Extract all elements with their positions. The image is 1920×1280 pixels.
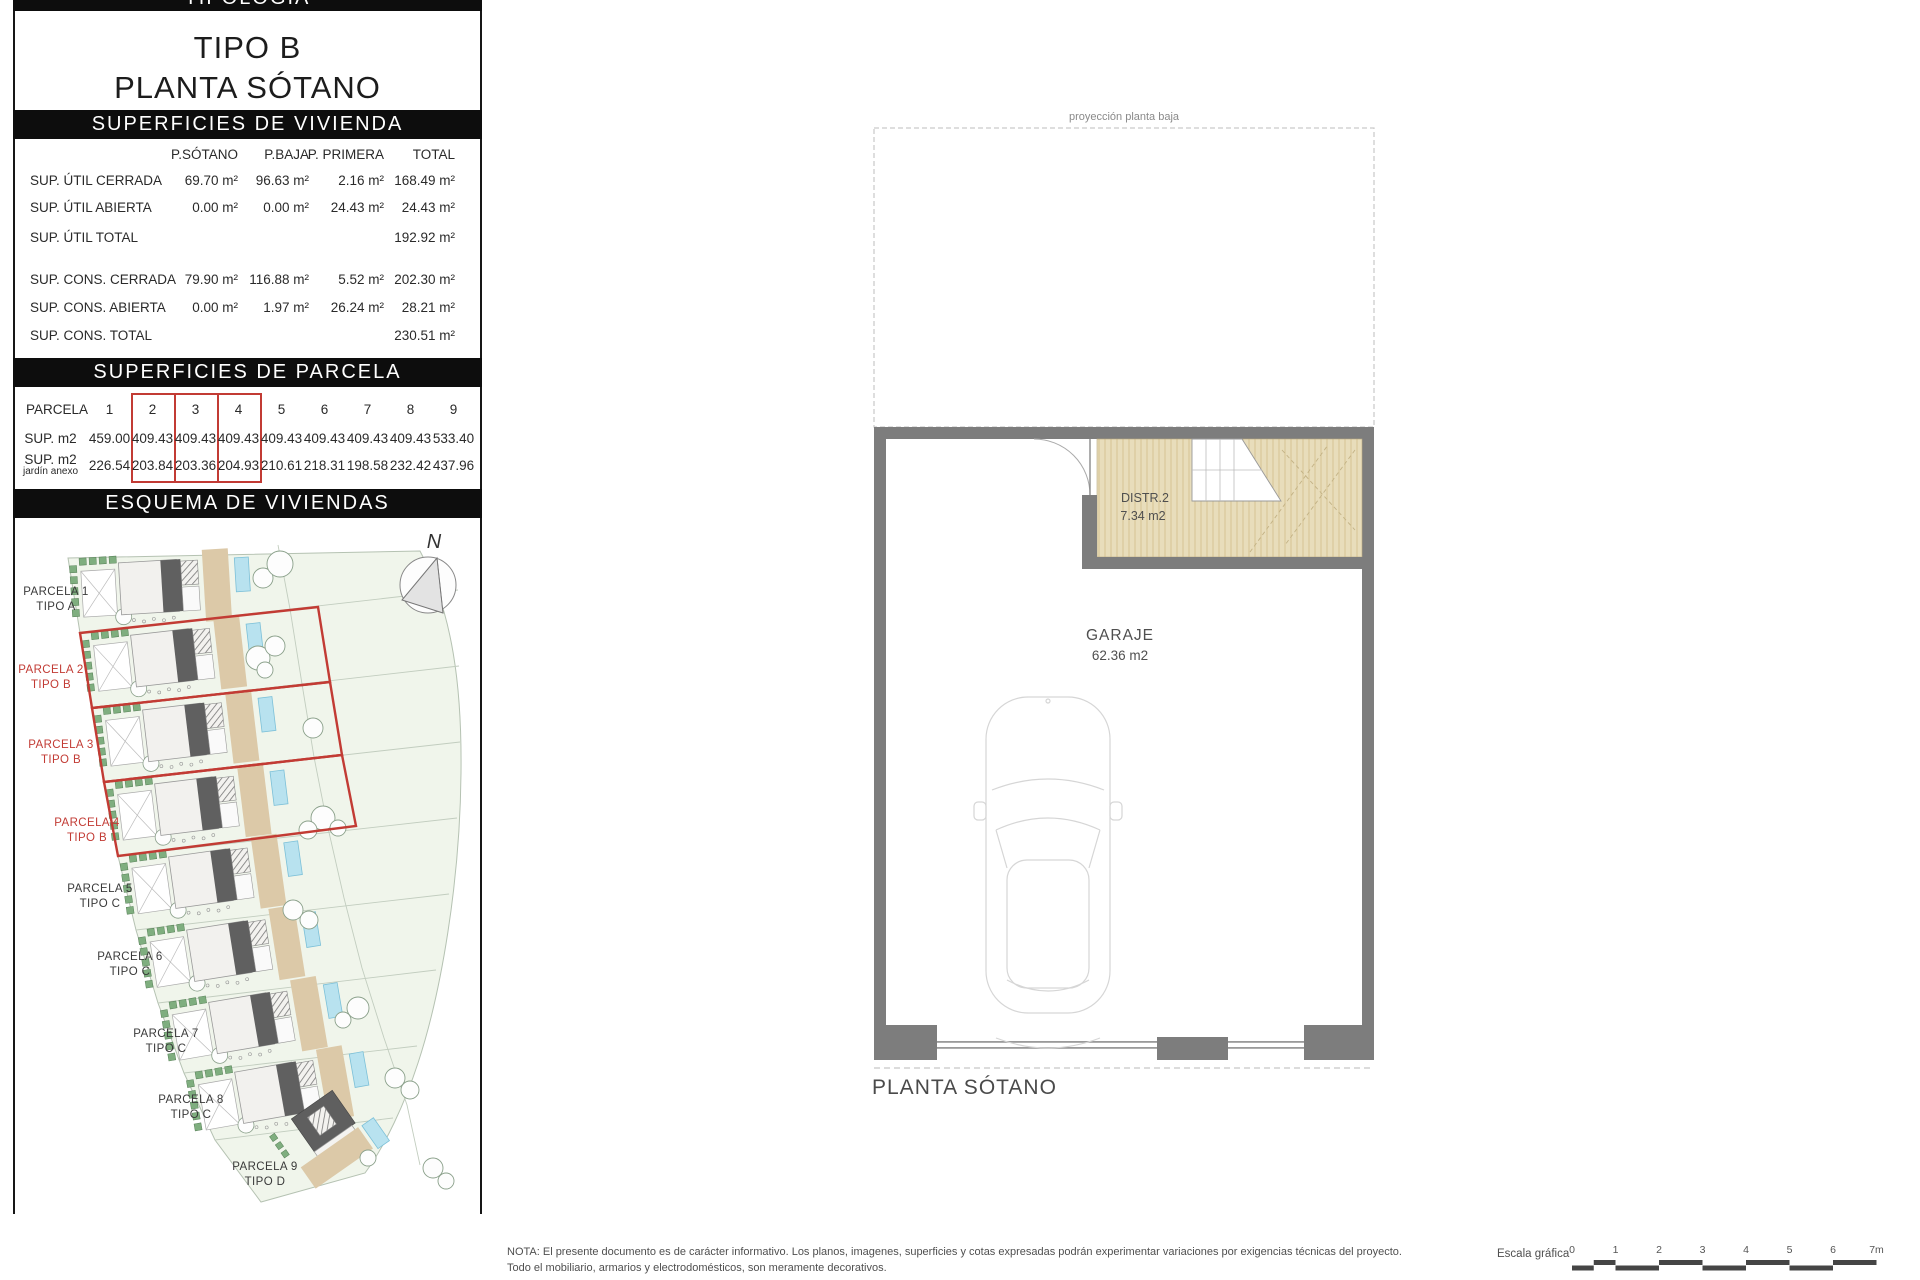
table-value: 198.58 <box>346 458 389 473</box>
row-label: SUP. ÚTIL ABIERTA <box>30 200 152 215</box>
parcel-label: TIPO C <box>110 966 151 978</box>
table-value: 192.92 m² <box>371 230 455 245</box>
tipologia-title: TIPOLOGIA <box>13 0 482 11</box>
table-value: 168.49 m² <box>371 173 455 188</box>
table-value: 202.30 m² <box>371 272 455 287</box>
parcel-label: TIPO C <box>146 1043 187 1055</box>
parcel-label: PARCELA 6 <box>97 951 162 963</box>
table-value: 409.43 <box>260 431 303 446</box>
scale-tick: 5 <box>1787 1244 1793 1256</box>
room-name: GARAJE <box>1086 627 1154 644</box>
tipo-title: TIPO B <box>13 30 482 66</box>
scale-tick: 4 <box>1743 1244 1749 1256</box>
parcel-label: TIPO B <box>67 832 107 844</box>
table-value: 116.88 m² <box>225 272 309 287</box>
col-header: TOTAL <box>371 147 455 162</box>
floor-plan: proyección planta baja <box>850 100 1450 1130</box>
scale-tick: 0 <box>1569 1244 1575 1256</box>
table-value: 96.63 m² <box>225 173 309 188</box>
table-value: 409.43 <box>131 431 174 446</box>
garage-door-lines <box>937 1041 1304 1049</box>
row-label: SUP. CONS. ABIERTA <box>30 300 166 315</box>
floor-plan-caption: PLANTA SÓTANO <box>872 1076 1057 1100</box>
scale-tick: 6 <box>1830 1244 1836 1256</box>
parcel-label: TIPO D <box>245 1176 286 1188</box>
parcel-id: 2 <box>131 402 174 417</box>
parcel-label: PARCELA 9 <box>232 1161 297 1173</box>
parcel-label: TIPO C <box>171 1109 212 1121</box>
footer-note-line1: NOTA: El presente documento es de caráct… <box>507 1246 1402 1258</box>
parcel-label: TIPO A <box>36 601 75 613</box>
row-label: SUP. m2 <box>13 452 88 467</box>
table-value: 203.84 <box>131 458 174 473</box>
table-value: 533.40 <box>432 431 475 446</box>
tipologia-header-bar: TIPOLOGIA <box>13 0 482 11</box>
table-value: 24.43 m² <box>371 200 455 215</box>
parcela-section-header: SUPERFICIES DE PARCELA <box>13 358 482 387</box>
table-value: 226.54 <box>88 458 131 473</box>
table-value: 210.61 <box>260 458 303 473</box>
parcel-label: TIPO C <box>80 898 121 910</box>
parcel-label: PARCELA 5 <box>67 883 132 895</box>
parcel-label: TIPO B <box>31 679 71 691</box>
scale-tick: 3 <box>1700 1244 1706 1256</box>
north-compass-icon: N <box>400 531 456 613</box>
parcel-label: TIPO B <box>41 754 81 766</box>
projection-label: proyección planta baja <box>1069 111 1180 123</box>
projection-outline <box>874 128 1374 427</box>
room-area: 62.36 m2 <box>1092 648 1148 663</box>
table-value: 203.36 <box>174 458 217 473</box>
parcel-label: PARCELA 2 <box>18 664 83 676</box>
table-value: 437.96 <box>432 458 475 473</box>
row-label: SUP. ÚTIL TOTAL <box>30 230 138 245</box>
table-value: 1.97 m² <box>225 300 309 315</box>
parcel-label: PARCELA 8 <box>158 1094 223 1106</box>
parcel-id: 8 <box>389 402 432 417</box>
graphic-scale-bar: 0 1 2 3 4 5 6 7m <box>1558 1242 1908 1278</box>
row-label: SUP. m2 <box>13 431 88 446</box>
footer-note-line2: Todo el mobiliario, armarios y electrodo… <box>507 1262 887 1274</box>
north-letter: N <box>427 531 442 553</box>
plan-sheet: TIPOLOGIA TIPO B PLANTA SÓTANO SUPERFICI… <box>0 0 1920 1280</box>
parcel-label: PARCELA 1 <box>23 586 88 598</box>
scale-tick: 2 <box>1656 1244 1662 1256</box>
vivienda-section-header: SUPERFICIES DE VIVIENDA <box>13 110 482 139</box>
table-value: 409.43 <box>217 431 260 446</box>
scale-tick: 7m <box>1869 1244 1884 1256</box>
row-label: PARCELA <box>26 402 88 417</box>
table-value: 409.43 <box>174 431 217 446</box>
table-value: 232.42 <box>389 458 432 473</box>
parcel-id: 6 <box>303 402 346 417</box>
row-label: SUP. ÚTIL CERRADA <box>30 173 162 188</box>
table-value: 409.43 <box>303 431 346 446</box>
room-name: DISTR.2 <box>1121 491 1169 505</box>
table-value: 230.51 m² <box>371 328 455 343</box>
table-value: 409.43 <box>346 431 389 446</box>
scale-segments <box>1572 1263 1877 1269</box>
row-sublabel: jardín anexo <box>13 466 88 477</box>
table-value: 459.00 <box>88 431 131 446</box>
scale-tick: 1 <box>1613 1244 1619 1256</box>
parcel-id: 1 <box>88 402 131 417</box>
parcel-id: 7 <box>346 402 389 417</box>
room-area: 7.34 m2 <box>1120 509 1165 523</box>
distr-room: DISTR.2 7.34 m2 <box>1034 439 1374 569</box>
planta-title: PLANTA SÓTANO <box>13 70 482 106</box>
table-value: 28.21 m² <box>371 300 455 315</box>
esquema-section-header: ESQUEMA DE VIVIENDAS <box>13 489 482 518</box>
table-value: 0.00 m² <box>225 200 309 215</box>
parcel-label: PARCELA 3 <box>28 739 93 751</box>
col-header: P.BAJA <box>225 147 309 162</box>
parcel-id: 3 <box>174 402 217 417</box>
parcel-label: PARCELA 7 <box>133 1028 198 1040</box>
table-value: 218.31 <box>303 458 346 473</box>
site-plan: PARCELA 1 TIPO A PARCELA 2 TIPO B PARCEL… <box>13 518 483 1215</box>
parcel-id: 4 <box>217 402 260 417</box>
row-label: SUP. CONS. TOTAL <box>30 328 152 343</box>
door-arc <box>1034 439 1090 495</box>
table-value: 409.43 <box>389 431 432 446</box>
car-icon <box>974 697 1122 1048</box>
table-value: 204.93 <box>217 458 260 473</box>
parcel-id: 9 <box>432 402 475 417</box>
parcel-label: PARCELA 4 <box>54 817 120 829</box>
parcel-id: 5 <box>260 402 303 417</box>
